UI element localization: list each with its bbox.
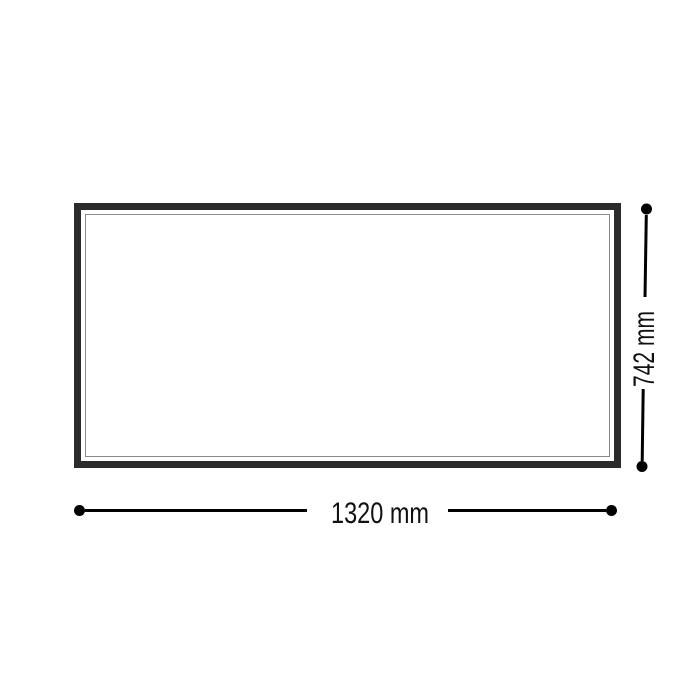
height-dimension-line-bottom-segment [642,389,643,461]
height-dimension-label: 742 mm [628,311,661,387]
frame-outer-rect [78,207,618,465]
height-dimension-top-endpoint-dot [641,204,652,215]
frame-inner-profile-line [86,215,610,457]
width-dimension-right-endpoint-dot [606,505,617,516]
width-dimension-left-endpoint-dot [74,505,85,516]
height-dimension-line-top-segment [645,215,646,297]
width-dimension-label: 1320 mm [331,497,429,530]
diagram-canvas: 1320 mm 742 mm [0,0,700,700]
dimension-diagram: 1320 mm 742 mm [0,0,700,700]
height-dimension-bottom-endpoint-dot [637,461,648,472]
